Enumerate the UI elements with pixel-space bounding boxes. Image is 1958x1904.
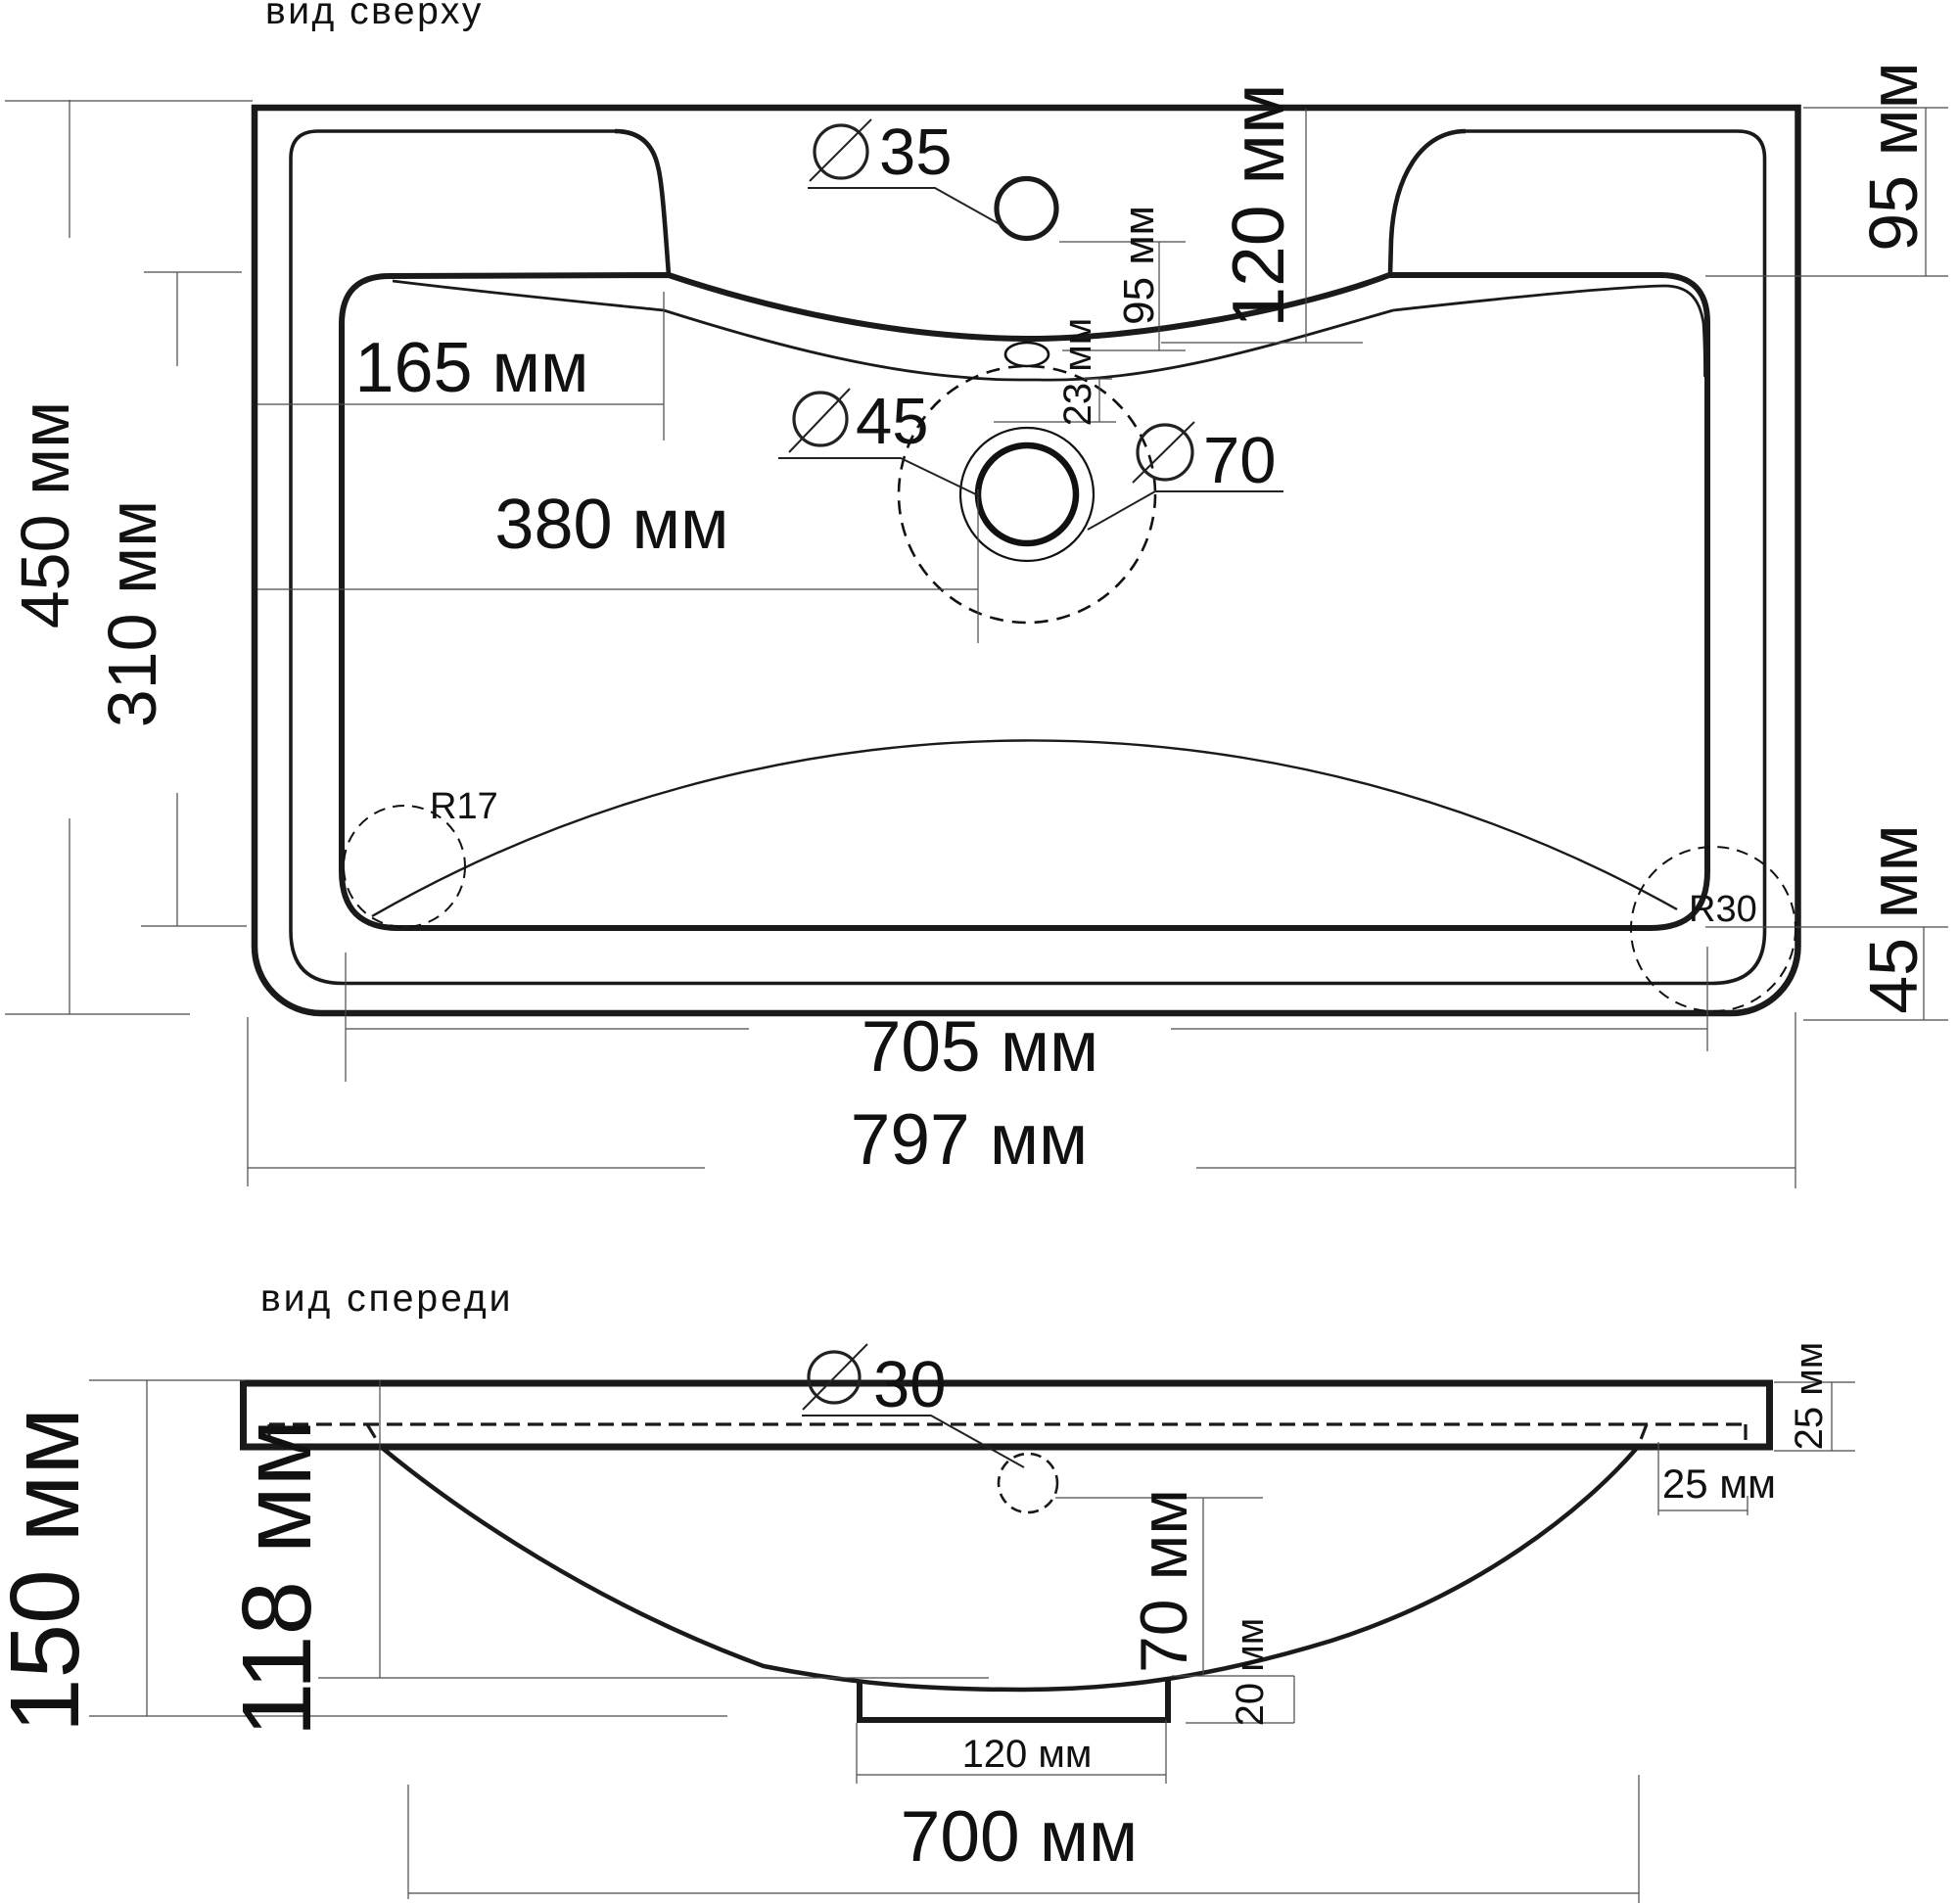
svg-text:25 мм: 25 мм xyxy=(1788,1342,1831,1451)
svg-text:118 мм: 118 мм xyxy=(222,1419,332,1738)
svg-text:70 мм: 70 мм xyxy=(1127,1489,1201,1673)
svg-text:23 мм: 23 мм xyxy=(1056,318,1099,427)
svg-text:R30: R30 xyxy=(1689,889,1757,930)
svg-text:вид спереди: вид спереди xyxy=(260,1277,513,1320)
svg-text:вид сверху: вид сверху xyxy=(265,0,484,32)
svg-text:705 мм: 705 мм xyxy=(862,1007,1098,1087)
svg-text:95 мм: 95 мм xyxy=(1115,206,1163,325)
svg-text:35: 35 xyxy=(879,116,953,189)
svg-text:700 мм: 700 мм xyxy=(901,1797,1138,1877)
svg-text:120 мм: 120 мм xyxy=(962,1733,1093,1776)
svg-text:R17: R17 xyxy=(430,786,498,827)
svg-text:150 мм: 150 мм xyxy=(0,1408,100,1733)
svg-text:20 мм: 20 мм xyxy=(1229,1618,1272,1727)
svg-text:70: 70 xyxy=(1203,424,1277,497)
svg-text:380 мм: 380 мм xyxy=(494,486,728,564)
svg-text:45: 45 xyxy=(856,385,929,458)
svg-text:165 мм: 165 мм xyxy=(354,329,588,407)
svg-text:30: 30 xyxy=(873,1348,947,1421)
svg-text:310 мм: 310 мм xyxy=(94,500,170,728)
svg-text:45 мм: 45 мм xyxy=(1855,824,1932,1014)
svg-text:120 мм: 120 мм xyxy=(1217,83,1299,327)
svg-text:797 мм: 797 мм xyxy=(851,1100,1088,1180)
svg-text:95 мм: 95 мм xyxy=(1855,62,1932,252)
svg-text:450 мм: 450 мм xyxy=(7,401,83,629)
svg-text:25 мм: 25 мм xyxy=(1662,1461,1776,1507)
